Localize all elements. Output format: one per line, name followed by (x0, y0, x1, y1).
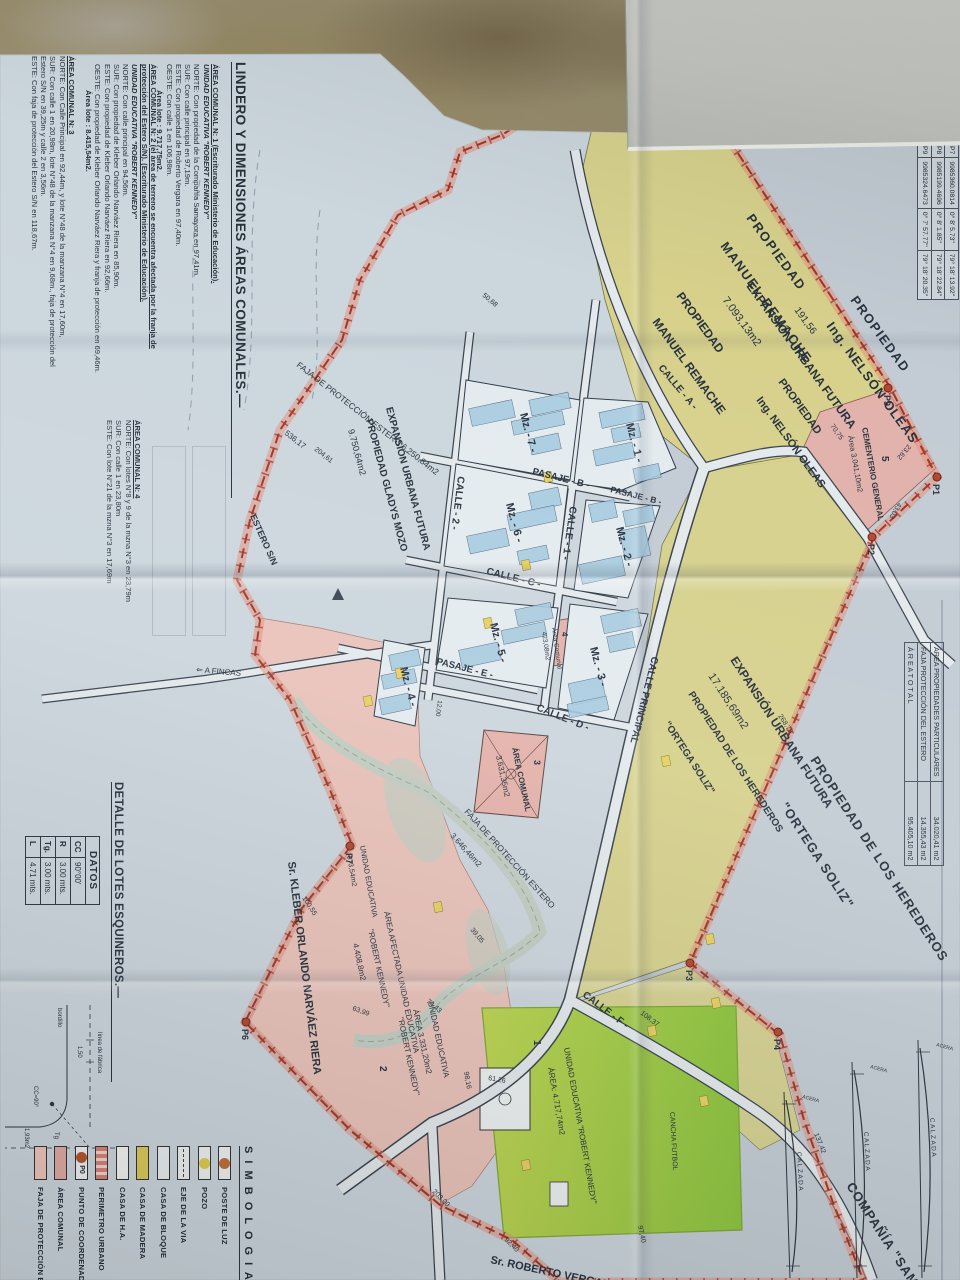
legend-swatch-icon (157, 1146, 170, 1180)
coordinate-point-label: P1 (931, 484, 941, 495)
legend-label: PUNTO DE COORDENADAS (77, 1187, 86, 1280)
legend-swatch-icon (116, 1146, 129, 1180)
note-line: NORTE: Con propiedad de la Compañía Sama… (192, 64, 201, 364)
table-row: P79985360.08140° 8' 5.73''79° 18' 13.92'… (945, 143, 959, 300)
photo-stage: línea de fábrica 1,50 bordillo Tg 1,93m2… (0, 0, 960, 1280)
map-label: 1 (531, 1040, 542, 1046)
legend-swatch-icon (54, 1146, 67, 1180)
note-line: NORTE: Con lotes N°8 y 9 de la mzna N°3 … (124, 420, 133, 664)
coordinates-table: P79985360.08140° 8' 5.73''79° 18' 13.92'… (918, 142, 960, 300)
table-row: P99985324.64730° 7' 57.77''79° 18' 20.35… (918, 143, 932, 300)
table-cell: ÁREA PROPIEDADES PARTICULARES (931, 643, 944, 782)
legend-swatch-icon: P0 (75, 1146, 88, 1180)
table-cell: 9985199.4696 (932, 158, 946, 208)
casa-madera-icon (711, 997, 721, 1008)
legend-item: CASA DE MADERA (133, 1146, 154, 1280)
legend-swatch-icon (95, 1146, 108, 1180)
legend-item: PERIMETRO URBANO (92, 1146, 113, 1280)
table-cell: Á R E A T O T A L (905, 643, 918, 782)
table-cell: 79° 18' 13.92'' (945, 250, 959, 300)
note-heading: ÁREA COMUNAL N: 3 (67, 56, 76, 390)
table-cell: 14.355,43 m2 (918, 781, 931, 865)
coordinate-point-icon (686, 959, 694, 967)
legend-item: EJE DE LA VIA (174, 1146, 195, 1280)
legend-swatch-icon (177, 1146, 190, 1180)
legend-item: FAJA DE PROTECCIÓN ESTERO (30, 1146, 51, 1280)
empty-frame (152, 446, 186, 636)
table-cell: 3.00 mts. (41, 858, 56, 905)
table-row: R3.00 mts. (56, 837, 71, 905)
note-line: SUR: Con calle 1 en 23,80m (114, 420, 123, 664)
casa-madera-icon (699, 1095, 709, 1106)
table-cell: FAJA PROTECCIÓN DEL ESTERO (918, 643, 931, 782)
table-cell: 3.00 mts. (56, 858, 71, 905)
coordinate-point-label: P4 (772, 1039, 782, 1050)
note-subheading: UNIDAD EDUCATIVA "ROBERT KENNEDY" (130, 64, 139, 376)
table-row: P89985199.46960° 8' 1.85''79° 18' 22.84'… (932, 143, 946, 300)
area-comunal-3-note: ÁREA COMUNAL N: 3 NORTE: Con Calle Princ… (30, 56, 76, 390)
note-heading: ÁREA COMUNAL N: 2 (el área de terreno se… (140, 64, 159, 376)
casa-madera-icon (363, 695, 373, 706)
table-row: L4.71 mts. (26, 837, 41, 905)
area-comunal-2-note: ÁREA COMUNAL N: 2 (el área de terreno se… (84, 64, 158, 376)
empty-frame (192, 446, 226, 636)
coordinate-point-icon (774, 1028, 782, 1036)
coordinate-point-label: P6 (240, 1029, 250, 1040)
map-label: 4 (560, 632, 569, 637)
table-cell: CC (71, 837, 86, 858)
legend-label: CASA DE BLOQUE (159, 1187, 168, 1258)
table-cell: L (26, 837, 41, 858)
table-cell: 0° 8' 1.85'' (932, 208, 946, 250)
note-area: Área lote : 8.415,54m2. (84, 64, 93, 376)
legend-swatch-icon (34, 1146, 47, 1180)
map-label: 2 (377, 1066, 388, 1072)
note-line: SUR: Con calle 1 en 20,98m, lote N°48 de… (39, 56, 58, 390)
coordinate-point-icon (242, 1018, 250, 1026)
svg-text:línea de fábrica: línea de fábrica (96, 1032, 102, 1074)
svg-text:CC=90°: CC=90° (32, 1086, 38, 1108)
coordinate-point-label: P2 (866, 544, 876, 555)
casa-madera-icon (521, 1159, 531, 1170)
legend-item: POZO (194, 1146, 215, 1280)
map-sheet: línea de fábrica 1,50 bordillo Tg 1,93m2… (0, 0, 960, 1280)
legend-item: POSTE DE LUZ (215, 1146, 236, 1280)
table-cell: 9985324.6473 (918, 158, 932, 208)
map-label: 3 (532, 760, 542, 765)
casa-madera-icon (661, 755, 671, 766)
legend-label: EJE DE LA VIA (179, 1187, 188, 1243)
casa-madera-icon (521, 559, 531, 570)
note-line: SUR: Con propiedad de Kleber Orlando Nar… (112, 64, 121, 376)
note-line: SUR: Con calle principal en 97,19m. (183, 64, 192, 364)
table-cell: R (56, 837, 71, 858)
note-line: OESTE: Con calle 1 en 106,98m. (165, 64, 174, 364)
svg-text:1,93m2: 1,93m2 (23, 1128, 29, 1149)
coordinate-point-icon (868, 533, 876, 541)
folded-paper (625, 0, 960, 151)
areas-summary-table: ÁREA PROPIEDADES PARTICULARES34.020,41 m… (904, 642, 944, 866)
svg-text:bordillo: bordillo (56, 1008, 62, 1028)
svg-text:Tg: Tg (53, 1132, 59, 1139)
datos-header: DATOS (86, 837, 100, 905)
legend-swatch-icon (218, 1146, 231, 1180)
area-comunal-1-note: ÁREA COMUNAL N: 1 (Escriturado Ministeri… (155, 64, 220, 364)
note-heading: ÁREA COMUNAL N: 1 (Escriturado Ministeri… (211, 64, 220, 364)
table-cell: 0° 8' 5.73'' (945, 208, 959, 250)
datos-table: DATOS CC90°00'R3.00 mts.Tg.3.00 mts.L4.7… (25, 836, 100, 905)
table-row: Á R E A T O T A L95.405,10 m2 (905, 643, 918, 866)
casa-madera-icon (433, 901, 443, 912)
legend-label: CASA DE H.A. (118, 1187, 127, 1241)
map-label: 5 (879, 456, 890, 462)
table-cell: 9985360.0814 (945, 158, 959, 208)
note-line: ESTE: Con faja de protección del Estero … (30, 56, 39, 390)
table-cell: 95.405,10 m2 (905, 781, 918, 865)
coordinate-point-icon (346, 842, 354, 850)
legend-swatch-icon (136, 1146, 149, 1180)
note-line: NORTE: Con Calle Principal en 92,44m, y … (58, 56, 67, 390)
note-line: ESTE: Con propiedad de Roberto Vergara e… (174, 64, 183, 364)
table-cell: 79° 18' 20.35'' (918, 250, 932, 300)
note-line: ESTE: Con lote N°21 de la mzna N°3 en 17… (105, 420, 114, 664)
plan-title: LINDERO Y DIMENSIONES ÁREAS COMUNALES.— (231, 62, 248, 498)
legend-swatch-icon (198, 1146, 211, 1180)
simbologia-legend: S I M B O L O G I A POSTE DE LUZPOZOEJE … (30, 1146, 254, 1280)
table-cell: Tg. (41, 837, 56, 858)
note-subheading: UNIDAD EDUCATIVA "ROBERT KENNEDY" (202, 64, 211, 364)
note-heading: ÁREA COMUNAL N: 4 (133, 420, 142, 664)
note-line: NORTE: Con calle principal en 94,56m. (121, 64, 130, 376)
legend-label: POZO (200, 1187, 209, 1209)
legend-label: ÁREA COMUNAL (56, 1187, 65, 1252)
legend-label: POSTE DE LUZ (220, 1187, 229, 1245)
table-cell: 0° 7' 57.77'' (918, 208, 932, 250)
legend-item: ÁREA COMUNAL (51, 1146, 72, 1280)
table-row: FAJA PROTECCIÓN DEL ESTERO14.355,43 m2 (918, 643, 931, 866)
legend-label: PERIMETRO URBANO (97, 1187, 106, 1271)
table-row: CC90°00' (71, 837, 86, 905)
table-row: Tg.3.00 mts. (41, 837, 56, 905)
detalle-title: DETALLE DE LOTES ESQUINEROS.— (111, 782, 124, 1082)
table-cell: 79° 18' 22.84'' (932, 250, 946, 300)
coordinate-point-icon (933, 473, 941, 481)
legend-label: CASA DE MADERA (138, 1187, 147, 1259)
table-cell: 90°00' (71, 858, 86, 905)
area-comunal-4-note: ÁREA COMUNAL N: 4 NORTE: Con lotes N°8 y… (105, 420, 142, 664)
table-cell: 4.71 mts. (26, 858, 41, 905)
table-cell: 34.020,41 m2 (931, 781, 944, 865)
coordinate-point-label: P3 (684, 970, 694, 981)
svg-text:1,50: 1,50 (76, 1046, 82, 1058)
simbologia-title: S I M B O L O G I A (239, 1146, 254, 1280)
legend-item: CASA DE BLOQUE (153, 1146, 174, 1280)
note-line: OESTE: Con propiedad de Kleber Orlando N… (93, 64, 102, 376)
legend-label: FAJA DE PROTECCIÓN ESTERO (36, 1187, 45, 1280)
legend-item: P0PUNTO DE COORDENADAS (71, 1146, 92, 1280)
table-row: ÁREA PROPIEDADES PARTICULARES34.020,41 m… (931, 643, 944, 866)
zone-comunal-3 (474, 730, 548, 818)
legend-item: CASA DE H.A. (112, 1146, 133, 1280)
note-line: ESTE: Con propiedad de Kleber Orlando Na… (103, 64, 112, 376)
